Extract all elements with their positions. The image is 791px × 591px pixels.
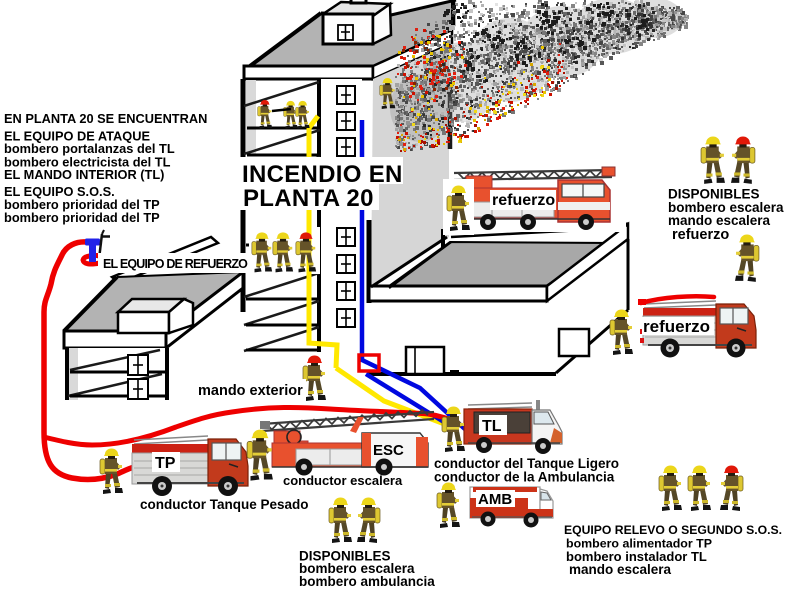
svg-text:INCENDIO EN: INCENDIO EN: [242, 161, 403, 188]
svg-text:PLANTA 20: PLANTA 20: [243, 185, 374, 212]
svg-text:TP: TP: [155, 455, 176, 472]
svg-text:refuerzo: refuerzo: [643, 317, 710, 336]
svg-text:mando escalera: mando escalera: [569, 562, 672, 577]
svg-text:bombero prioridad del TP: bombero prioridad del TP: [4, 210, 160, 225]
svg-text:bombero ambulancia: bombero ambulancia: [299, 574, 435, 589]
svg-text:EQUIPO RELEVO O SEGUNDO S.O.S.: EQUIPO RELEVO O SEGUNDO S.O.S.: [564, 523, 782, 537]
svg-text:refuerzo: refuerzo: [672, 227, 729, 243]
svg-text:mando escalera: mando escalera: [668, 213, 771, 228]
svg-text:EL MANDO INTERIOR (TL): EL MANDO INTERIOR (TL): [4, 167, 164, 182]
svg-text:TL: TL: [482, 418, 502, 435]
svg-text:conductor Tanque Pesado: conductor Tanque Pesado: [140, 497, 309, 512]
svg-text:refuerzo: refuerzo: [492, 192, 555, 209]
svg-text:ESC: ESC: [373, 442, 404, 459]
svg-text:AMB: AMB: [478, 491, 512, 508]
svg-text:conductor escalera: conductor escalera: [283, 473, 403, 488]
svg-text:mando exterior: mando exterior: [198, 383, 303, 399]
svg-text:EL EQUIPO DE REFUERZO: EL EQUIPO DE REFUERZO: [103, 257, 248, 271]
svg-text:conductor de la Ambulancia: conductor de la Ambulancia: [434, 470, 615, 485]
svg-text:EN PLANTA 20 SE ENCUENTRAN: EN PLANTA 20 SE ENCUENTRAN: [4, 111, 207, 126]
